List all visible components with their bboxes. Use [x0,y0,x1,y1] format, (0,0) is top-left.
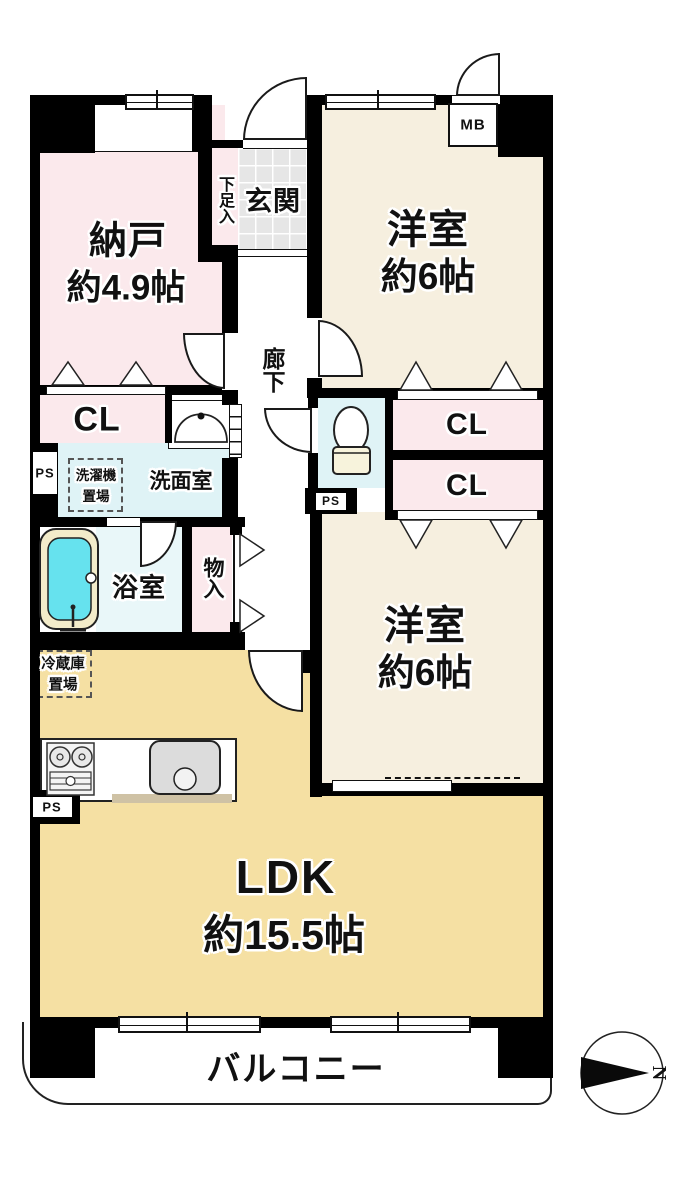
wall-left [30,95,40,1017]
bathtub-icon [40,529,98,630]
wall-toilet-top [307,388,393,398]
label-fridge-line1: 冷蔵庫 [41,653,85,674]
monoire-triangle-1 [240,534,264,566]
wall-ldk-door-stub [303,650,322,673]
label-western1-area: 約6帖 [381,246,476,300]
window-ldk-right-tick [397,1012,399,1033]
partition-track-dash [385,777,520,779]
toilet-floor [318,398,385,488]
wall-corner-bl [30,1017,95,1078]
label-bathroom: 浴室 [112,568,166,605]
wall-corridor-left-a [222,257,238,333]
label-ldk: LDK [236,850,337,904]
label-monoire: 物入 [197,557,227,599]
closet1-doorline [397,390,538,400]
label-washer-line1: 洗濯機 [76,464,117,484]
label-fridge-line2: 置場 [49,674,78,695]
label-closet2: CL [446,469,488,503]
entry-door-swing [243,77,307,140]
window-ldk-right [330,1016,471,1033]
monoire-triangle-2 [240,600,264,632]
wall-cl-mid [385,450,543,460]
wall-corridor-left-b [222,390,238,405]
toilet-door-swing [264,408,312,453]
wall-corner-br [498,1017,553,1078]
label-washroom: 洗面室 [150,465,213,495]
wall-western2-left [310,500,322,797]
wall-bottom [30,1017,553,1028]
wall-genkan-left [198,95,212,262]
closet-nando-doorline [46,386,166,395]
window-western1 [325,94,436,110]
wall-bath-monoire-divider [182,527,192,632]
basin-alcove [168,400,234,449]
compass-icon: N [581,1032,670,1114]
label-nando-area: 約4.9帖 [67,260,186,311]
label-closet-nando: CL [73,401,120,440]
label-nando: 納戸 [89,210,167,265]
wall-bath-bottom [30,632,245,650]
label-ps-kitchen: PS [42,800,61,815]
label-genkan: 玄関 [245,180,301,219]
window-western1-tick [377,90,379,110]
wall-cl-basin-divider [165,395,172,443]
label-shoes: 下足入 [212,176,236,224]
closet2-doorline [397,510,538,520]
washroom-sliding-door [229,404,242,458]
wall-shoes-top [212,140,243,148]
label-closet1: CL [446,408,488,442]
nando-upper-alcove [95,105,192,152]
wall-right [543,105,553,1078]
monoire-door-panel [233,535,235,622]
kitchen-counter-shadow [112,794,232,803]
wall-toilet-left-b [308,453,318,488]
label-washer-line2: 置場 [83,485,110,505]
wall-top-left [95,95,125,105]
label-mb: MB [460,117,485,134]
mb-door-swing [456,53,500,96]
wall-monoire-right-top [230,527,242,535]
label-balcony: バルコニー [206,1042,385,1091]
label-ps-left: PS [35,466,54,481]
label-ps-toilet: PS [322,494,340,508]
wall-genkan-right [307,95,322,318]
wall-toilet-left-a [308,398,318,408]
partition-sliding-panel [332,780,452,792]
floor-plan: N 納戸 約4.9帖 下足入 玄関 洋室 約6帖 MB CL 廊下 洗濯機 置場… [0,0,694,1180]
label-corridor: 廊下 [255,347,289,393]
window-nando-tick [156,90,158,110]
label-western2-area: 約6帖 [378,642,473,696]
label-ldk-area: 約15.5帖 [203,901,365,961]
window-ldk-left [118,1016,261,1033]
window-ldk-left-tick [186,1012,188,1033]
compass-north-label: N [648,1066,670,1081]
bath-door-opening [107,518,140,526]
window-nando [125,94,194,110]
entry-door-opening [243,139,307,149]
